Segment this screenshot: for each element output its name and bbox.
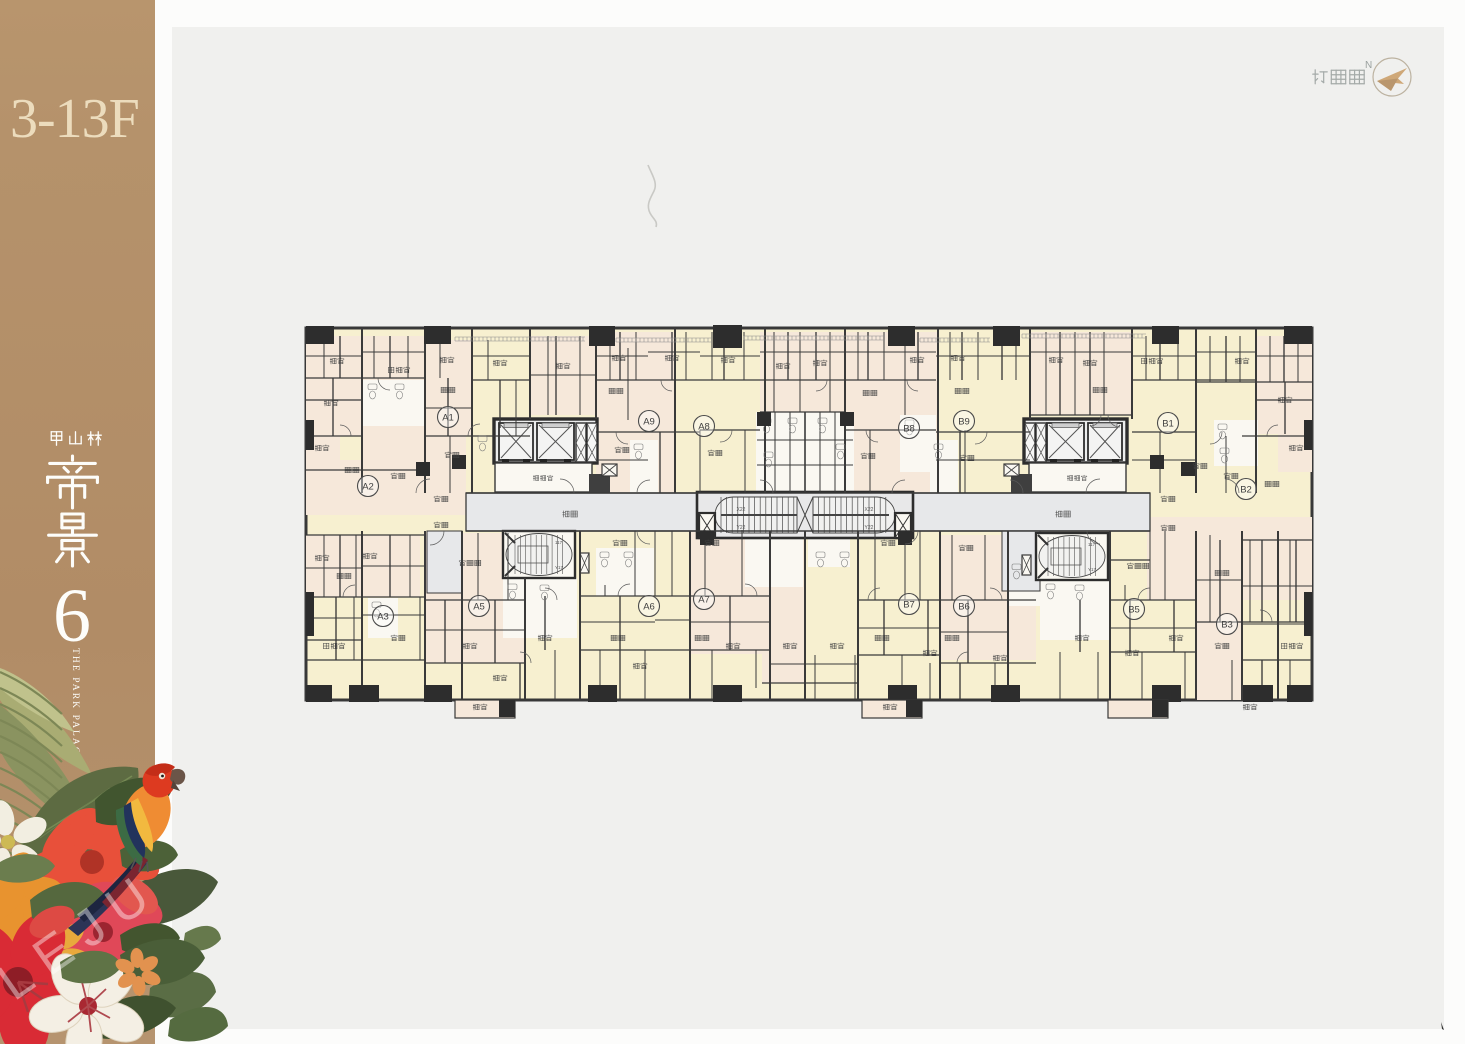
svg-text:A9: A9 xyxy=(643,417,655,428)
svg-text:B7: B7 xyxy=(903,600,915,611)
svg-text:B5: B5 xyxy=(1128,605,1140,616)
svg-text:A5: A5 xyxy=(473,602,485,613)
svg-text:A1: A1 xyxy=(442,413,454,424)
svg-text:A2: A2 xyxy=(362,482,374,493)
svg-text:B9: B9 xyxy=(958,417,970,428)
svg-text:B1: B1 xyxy=(1162,419,1174,430)
svg-text:117: 117 xyxy=(555,540,563,545)
svg-text:A7: A7 xyxy=(698,595,710,606)
svg-text:A6: A6 xyxy=(643,602,655,613)
svg-text:3-13F: 3-13F xyxy=(10,88,139,150)
svg-text:Y22: Y22 xyxy=(737,525,746,531)
svg-text:B2: B2 xyxy=(1240,485,1252,496)
svg-text:X22: X22 xyxy=(865,507,874,513)
svg-text:A8: A8 xyxy=(698,422,710,433)
svg-text:B6: B6 xyxy=(958,602,970,613)
svg-text:Y22: Y22 xyxy=(865,525,874,531)
svg-text:N: N xyxy=(1365,60,1372,71)
svg-text:X22: X22 xyxy=(737,507,746,513)
svg-text:B3: B3 xyxy=(1221,620,1233,631)
svg-text:Y17: Y17 xyxy=(1088,567,1097,572)
svg-text:Y17: Y17 xyxy=(555,565,564,570)
svg-text:B8: B8 xyxy=(903,424,915,435)
svg-text:6: 6 xyxy=(53,574,91,658)
svg-text:A3: A3 xyxy=(377,612,389,623)
